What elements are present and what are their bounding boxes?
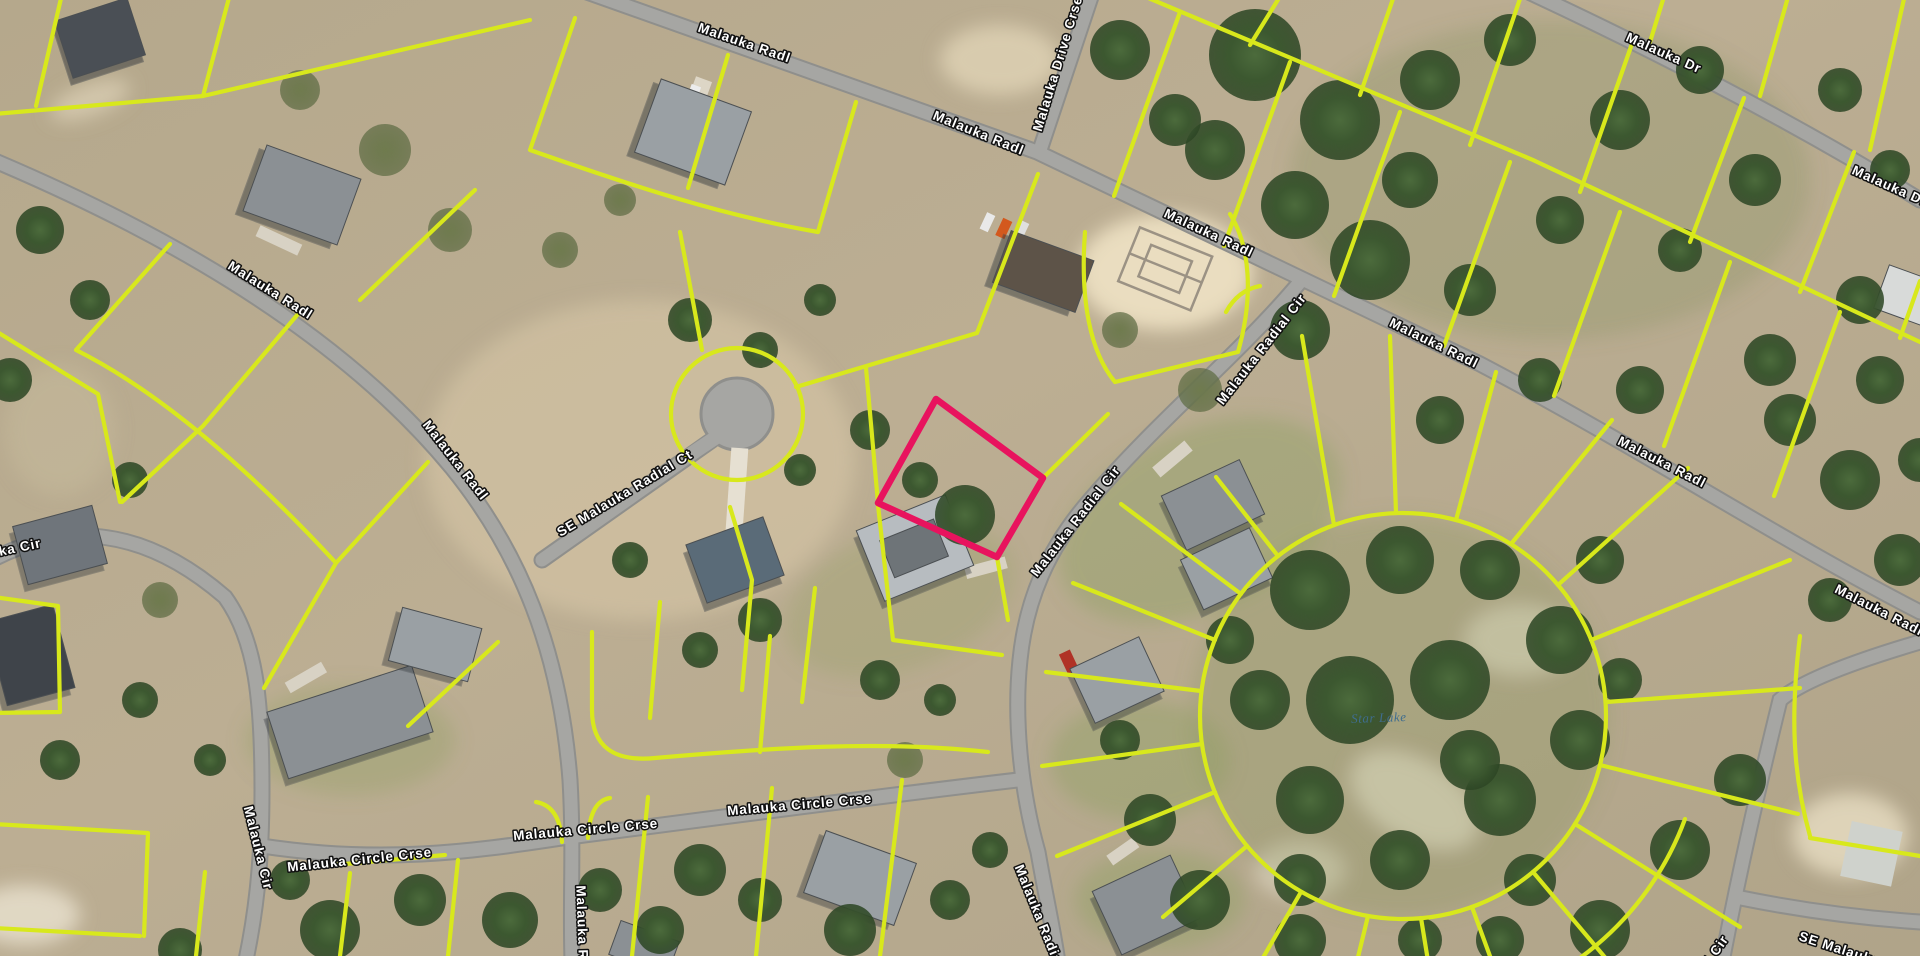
road-label: Malauka Radl <box>573 885 591 956</box>
water-label: Star Lake <box>1351 709 1407 726</box>
map-viewport[interactable]: Malauka RadlMalauka RadlMalauka RadlMala… <box>0 0 1920 956</box>
water-labels: Star Lake <box>1351 709 1407 726</box>
parcel-map[interactable]: Malauka RadlMalauka RadlMalauka RadlMala… <box>0 0 1920 956</box>
